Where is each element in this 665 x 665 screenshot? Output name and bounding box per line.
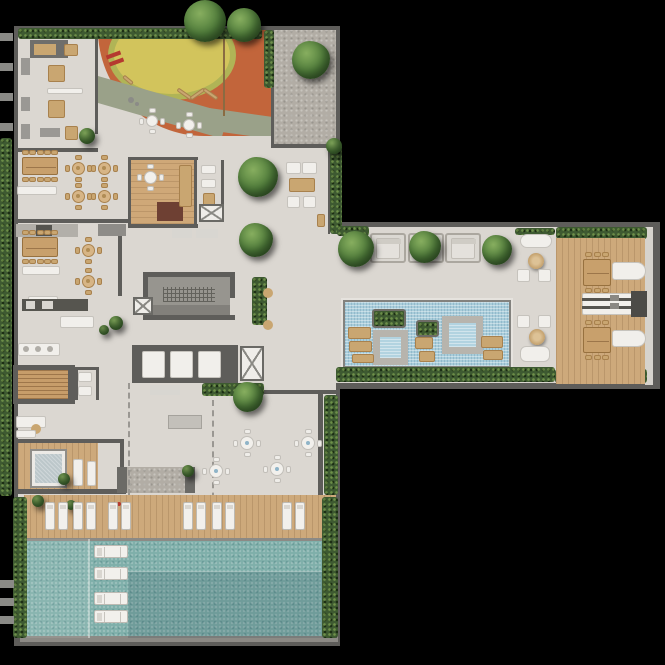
top-hedge — [18, 28, 262, 39]
chair — [585, 355, 592, 360]
pool-deep-end — [128, 571, 334, 638]
curved-bench — [520, 234, 552, 248]
gym-bush — [79, 128, 95, 144]
chair — [149, 108, 156, 113]
lounger-pillow — [227, 505, 233, 509]
vanity-counter-2 — [16, 430, 36, 438]
elevator-cab-3 — [198, 351, 221, 378]
table-top — [22, 157, 58, 175]
grill-station — [631, 291, 647, 317]
lounger — [225, 502, 235, 530]
figure-2 — [135, 102, 139, 106]
top-hedge-blob-2 — [227, 8, 261, 42]
figure — [128, 97, 134, 103]
wall-spa-room-bottom — [14, 489, 126, 494]
terrace-chair-2 — [303, 196, 316, 208]
kitchen-appliance — [98, 224, 126, 236]
deck-table — [583, 252, 611, 293]
chair — [91, 193, 96, 200]
sun-lounger-pair-6 — [282, 502, 305, 530]
chair — [65, 165, 70, 172]
chair — [594, 320, 601, 325]
table-center — [86, 248, 90, 252]
planter-pad — [168, 415, 202, 429]
terrace-hedge-column — [324, 395, 338, 495]
chair — [51, 150, 58, 155]
pool-sun-shelf — [24, 539, 90, 638]
chair — [51, 177, 58, 182]
dining-table-5 — [75, 237, 102, 264]
sun-lounger-pair-2 — [73, 502, 96, 530]
lounger-divider — [120, 547, 121, 557]
sun-lounger-pair-5 — [212, 502, 235, 530]
gym-mat-2 — [64, 44, 78, 56]
balcony-slab — [0, 33, 13, 41]
balcony-slab-2 — [0, 63, 13, 71]
patio-hedge-blob — [326, 138, 342, 154]
lounger-pillow — [123, 505, 129, 509]
lounger — [108, 502, 118, 530]
chair — [197, 122, 202, 129]
wc-fixture-2 — [201, 179, 216, 188]
lounger-pillow — [75, 505, 81, 509]
in-pool-lounger-4 — [94, 610, 128, 623]
wall-wc-right — [96, 367, 99, 400]
lounger — [295, 502, 305, 530]
chair — [97, 278, 102, 285]
table-top — [72, 162, 85, 175]
chair — [602, 320, 609, 325]
parasol — [528, 253, 544, 269]
table-seam — [26, 248, 56, 249]
chair — [22, 259, 29, 264]
cabana-headrest — [377, 239, 401, 244]
table-top — [183, 119, 195, 131]
chair — [101, 177, 108, 182]
chair — [75, 247, 80, 254]
machine-room-band — [148, 305, 230, 315]
table-top — [22, 237, 58, 257]
chair — [97, 247, 102, 254]
chair — [75, 155, 82, 160]
stepping-stone-6 — [481, 336, 503, 348]
chair — [139, 118, 144, 125]
chair — [202, 468, 207, 475]
terrace-coffee-table — [289, 178, 315, 192]
lounger-pillow — [97, 595, 102, 603]
balcony-slab-3 — [0, 93, 13, 101]
chair — [29, 177, 36, 182]
corridor-bench — [172, 229, 192, 238]
chair — [294, 440, 299, 447]
chair — [37, 177, 44, 182]
chair — [274, 455, 281, 460]
chair — [29, 259, 36, 264]
gym-shelf — [40, 128, 60, 137]
terrace-chair — [287, 196, 300, 208]
lounger-divider — [120, 612, 121, 622]
pool-cafe-table-3 — [263, 455, 291, 483]
bush — [109, 316, 123, 330]
lounger-divider — [104, 547, 105, 557]
chair — [160, 118, 165, 125]
table-center — [102, 194, 106, 198]
table-top — [98, 190, 111, 203]
table-top — [301, 436, 315, 450]
shower-fixture — [78, 372, 92, 382]
chair — [101, 205, 108, 210]
chair — [85, 237, 92, 242]
grill-sink-2 — [610, 303, 619, 309]
wall-gym-right — [95, 30, 98, 134]
chair — [65, 193, 70, 200]
lounger-pillow — [214, 505, 220, 509]
table-seam — [587, 341, 609, 342]
chair — [305, 429, 312, 434]
patio-planter — [264, 30, 274, 88]
lounger-pillow — [110, 505, 116, 509]
gourmet-table — [137, 164, 164, 191]
chair — [44, 177, 51, 182]
whirlpool-tub-2 — [442, 316, 483, 354]
chair — [585, 320, 592, 325]
table-center — [245, 441, 249, 445]
gym-bench-3 — [21, 124, 30, 139]
dining-table-3 — [65, 183, 92, 210]
dining-table-2 — [91, 155, 118, 182]
chair — [594, 252, 601, 257]
chair — [85, 290, 92, 295]
lounger-pillow — [198, 505, 204, 509]
dining-table-6 — [75, 268, 102, 295]
stepping-stone-2 — [349, 341, 372, 352]
marble-counter-2 — [612, 330, 646, 347]
table-seam — [587, 273, 609, 274]
banquet-table-2 — [22, 230, 58, 264]
lounger — [212, 502, 222, 530]
table-top — [144, 171, 157, 184]
chair — [85, 259, 92, 264]
pool-cafe-table — [202, 457, 230, 485]
play-pole — [223, 30, 225, 116]
parasol-2 — [529, 329, 545, 345]
balcony-slab-6 — [0, 598, 14, 606]
daybed — [520, 346, 550, 362]
table-center — [214, 469, 218, 473]
lobby-bench — [150, 385, 180, 395]
chair — [91, 165, 96, 172]
table-top — [98, 162, 111, 175]
chair — [75, 183, 82, 188]
chair — [75, 278, 80, 285]
chair — [29, 150, 36, 155]
wc-fixture — [201, 165, 216, 174]
table-top — [583, 259, 611, 286]
terrace-sofa-2 — [302, 162, 317, 174]
chair — [256, 440, 261, 447]
chair — [44, 230, 51, 235]
wall-gourmet-right — [194, 157, 197, 228]
table-top — [270, 462, 284, 476]
cabana-headrest — [452, 239, 476, 244]
chair — [159, 174, 164, 181]
table-center — [86, 279, 90, 283]
stepping-stone — [348, 327, 371, 339]
chair — [75, 205, 82, 210]
balcony-slab-4 — [0, 123, 13, 131]
chair — [176, 122, 181, 129]
sideboard-counter — [22, 266, 60, 275]
lounger — [86, 502, 96, 530]
wall-corridor — [118, 228, 122, 296]
chair — [85, 268, 92, 273]
shower-fixture-2 — [78, 386, 92, 396]
chair — [286, 466, 291, 473]
spa-shelf — [87, 461, 96, 486]
wall-core-right — [230, 272, 235, 298]
lounger-divider — [104, 594, 105, 604]
terrace-bench — [317, 214, 325, 227]
stair-shaft — [133, 297, 153, 315]
chair — [37, 150, 44, 155]
patio-chair-4 — [538, 315, 551, 328]
vertical-garden-2 — [330, 144, 342, 234]
chair — [213, 480, 220, 485]
stepping-stone-4 — [415, 337, 433, 349]
stepping-stone-5 — [419, 351, 435, 362]
table-top — [583, 327, 611, 353]
chair — [147, 186, 154, 191]
stepping-stone-3 — [352, 354, 374, 363]
gym-mat-3 — [48, 65, 65, 82]
chair — [22, 150, 29, 155]
table-top — [240, 436, 254, 450]
chair — [244, 429, 251, 434]
chair — [602, 355, 609, 360]
wall-terrace-horiz — [264, 390, 340, 394]
patio-chair-2 — [538, 269, 551, 282]
in-pool-lounger-2 — [94, 567, 128, 580]
table-center — [275, 467, 279, 471]
chair — [147, 164, 154, 169]
chair — [22, 230, 29, 235]
sink-3 — [47, 346, 53, 352]
dining-table-4 — [91, 183, 118, 210]
sink — [23, 346, 29, 352]
lounger-pillow — [47, 505, 53, 509]
table-top — [82, 244, 95, 257]
display-case — [60, 316, 94, 328]
lounger-pillow — [97, 613, 102, 621]
sun-lounger-pair-3 — [108, 502, 131, 530]
spa-lounger — [73, 459, 83, 486]
shower-pad — [127, 467, 185, 493]
table-top — [82, 275, 95, 288]
lounger — [73, 502, 83, 530]
table-center — [76, 166, 80, 170]
lounger-pillow — [97, 570, 102, 578]
corridor-bench-2 — [196, 229, 218, 238]
balcony-slab-7 — [0, 616, 14, 624]
dining-table — [65, 155, 92, 182]
cabana-daybed — [370, 233, 406, 263]
top-hedge-blob — [184, 0, 226, 42]
lounger-pillow — [97, 548, 102, 556]
chair — [149, 129, 156, 134]
lounger — [45, 502, 55, 530]
chair — [29, 230, 36, 235]
sun-lounger-pair — [45, 502, 68, 530]
lounger — [58, 502, 68, 530]
lounger-pillow — [60, 505, 66, 509]
gym-box — [65, 126, 78, 140]
elevator-cab — [142, 351, 165, 378]
pool-hedge-right — [322, 497, 338, 638]
lounger — [196, 502, 206, 530]
cabana-mattress — [451, 238, 475, 259]
chair — [602, 252, 609, 257]
patio-chair — [517, 269, 530, 282]
chair — [233, 440, 238, 447]
grill-sink — [610, 295, 619, 301]
play-table — [139, 108, 165, 134]
chair — [101, 183, 108, 188]
chair — [37, 259, 44, 264]
stair-shaft-2 — [240, 346, 264, 381]
chair — [594, 355, 601, 360]
chair — [244, 452, 251, 457]
gym-barbell — [47, 88, 83, 94]
in-pool-lounger-3 — [94, 592, 128, 605]
gym-bench-2 — [21, 97, 30, 111]
deck-plant — [32, 495, 44, 507]
bush-3 — [182, 465, 194, 477]
chair — [113, 193, 118, 200]
lounger — [183, 502, 193, 530]
chair — [317, 440, 322, 447]
spa-planter-2 — [416, 320, 439, 337]
stool-2 — [263, 288, 273, 298]
buffet-counter — [17, 186, 57, 195]
bush-2 — [99, 325, 109, 335]
left-hedge-column — [0, 138, 12, 496]
sauna-benches — [18, 370, 68, 399]
lounger-pillow — [185, 505, 191, 509]
pool-hedge-left — [13, 497, 27, 638]
balcony-slab-5 — [0, 580, 14, 588]
wing-hedge-bottom — [336, 367, 555, 382]
lounger-pillow — [284, 505, 290, 509]
terrace-sofa — [286, 162, 301, 174]
boundary-dashed-line-2 — [128, 383, 130, 495]
spa-room-plant — [58, 473, 70, 485]
vertical-garden — [252, 277, 267, 325]
chair — [44, 150, 51, 155]
chair — [186, 112, 193, 117]
wall-wing-right — [653, 222, 660, 389]
chair — [22, 177, 29, 182]
table-top — [72, 190, 85, 203]
whirlpool-tub — [373, 330, 408, 365]
lounger-divider — [104, 569, 105, 579]
chair — [137, 174, 142, 181]
chair — [585, 252, 592, 257]
gym-mat-4 — [48, 100, 65, 118]
chair — [51, 259, 58, 264]
cabana-daybed-3 — [445, 233, 481, 263]
chair — [274, 478, 281, 483]
table-center — [306, 441, 310, 445]
bar-item — [26, 301, 35, 309]
pool-cafe-table-2 — [233, 429, 261, 457]
gym-mat — [34, 44, 56, 55]
marble-counter — [612, 262, 646, 280]
elevator-cab-2 — [170, 351, 193, 378]
lounger — [121, 502, 131, 530]
wall-core-bottom — [143, 315, 235, 320]
chair — [44, 259, 51, 264]
lounger-pillow — [88, 505, 94, 509]
table-top — [146, 115, 158, 127]
wall-gourmet-bottom — [128, 224, 198, 228]
deck-table-2 — [583, 320, 611, 360]
chair — [113, 165, 118, 172]
table-top — [209, 464, 223, 478]
cabana-mattress — [376, 238, 400, 259]
chair — [186, 133, 193, 138]
lounger-pillow — [297, 505, 303, 509]
bar-item-2 — [42, 301, 53, 309]
spa-planter — [372, 309, 406, 328]
gym-bench — [21, 58, 30, 75]
stepping-stone-7 — [483, 350, 503, 360]
stool-3 — [263, 320, 273, 330]
table-center — [102, 166, 106, 170]
shower-wall-cap — [117, 467, 127, 493]
gourmet-cabinet — [179, 165, 192, 207]
chair — [225, 468, 230, 475]
table-seam — [26, 167, 56, 168]
chair — [305, 452, 312, 457]
chair — [213, 457, 220, 462]
machine-room-grid — [163, 287, 215, 302]
sink-2 — [35, 346, 41, 352]
lounger-divider — [104, 612, 105, 622]
lounger-divider — [120, 569, 121, 579]
sun-lounger-pair-4 — [183, 502, 206, 530]
lounger — [282, 502, 292, 530]
shaft — [199, 204, 224, 222]
play-table-2 — [176, 112, 202, 138]
chair — [101, 155, 108, 160]
patio-chair-3 — [517, 315, 530, 328]
in-pool-lounger — [94, 545, 128, 558]
lounger-divider — [120, 594, 121, 604]
chair — [75, 177, 82, 182]
table-center — [76, 194, 80, 198]
chair — [37, 230, 44, 235]
chair — [51, 230, 58, 235]
pool-cafe-table-4 — [294, 429, 322, 457]
floor-plan-image — [0, 0, 665, 665]
banquet-table — [22, 150, 58, 182]
chair — [263, 466, 268, 473]
